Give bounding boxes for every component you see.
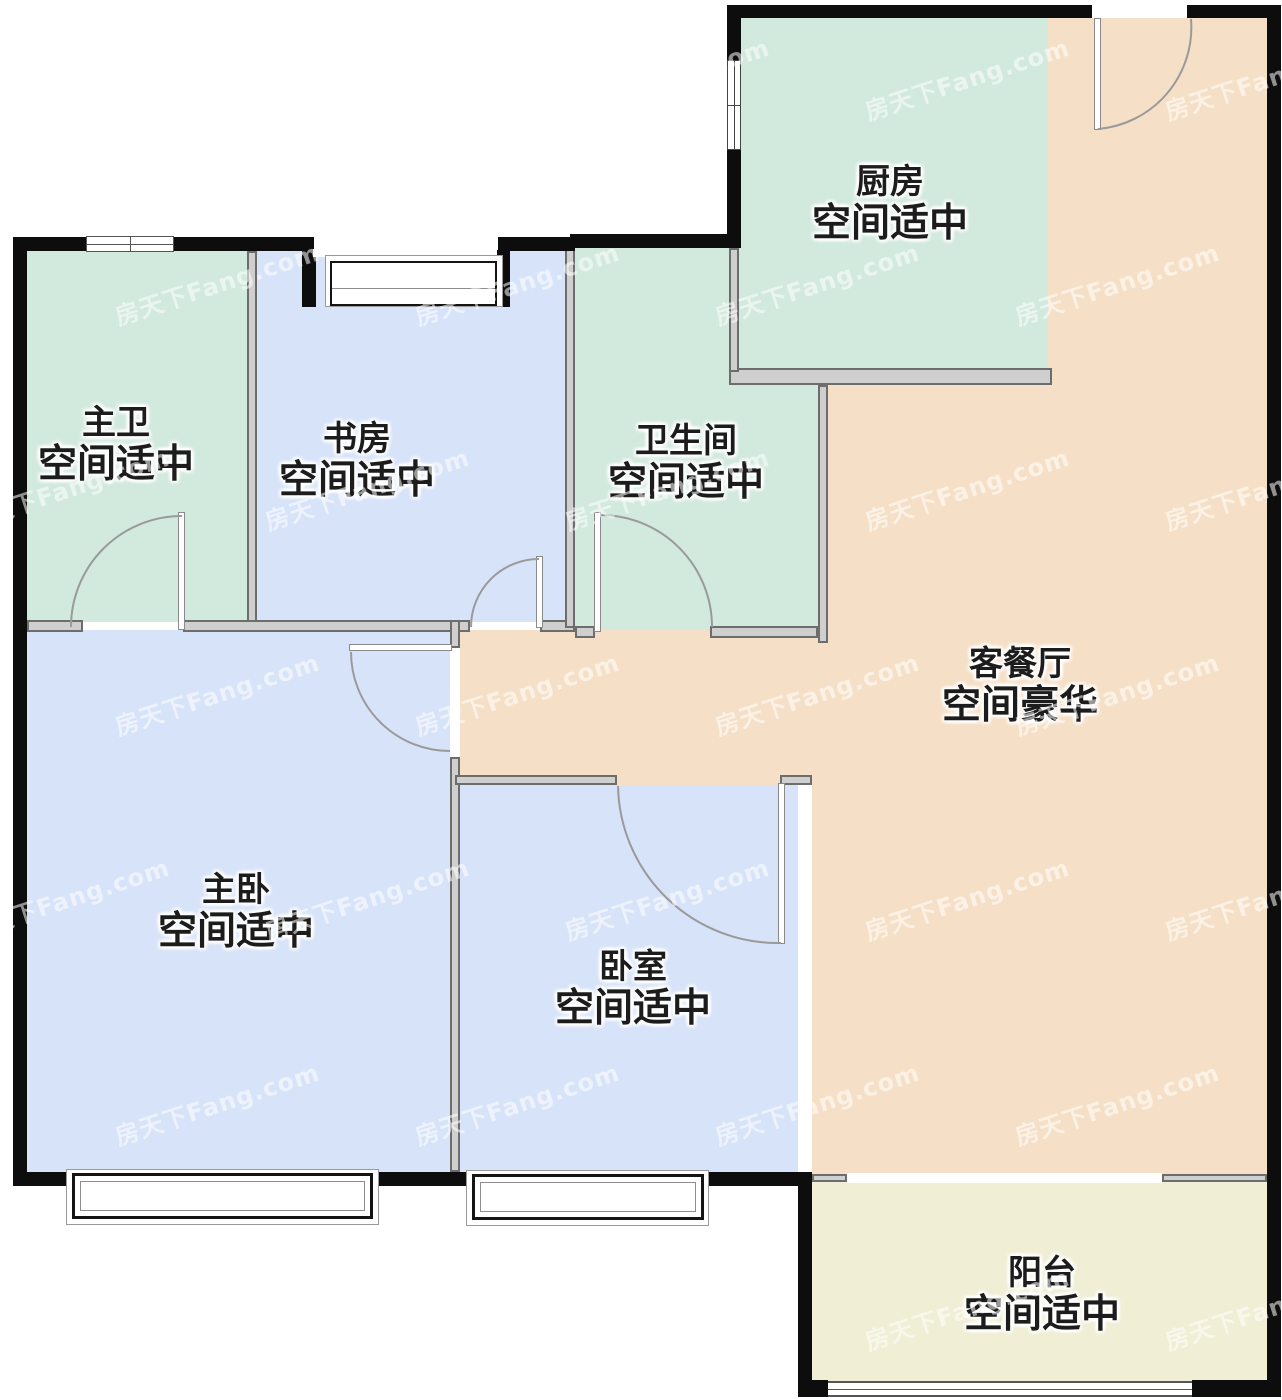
room-label-bedroom: 卧室 空间适中 bbox=[555, 948, 711, 1032]
room-name: 卧室 bbox=[599, 948, 667, 987]
room-label-kitchen: 厨房 空间适中 bbox=[812, 163, 968, 247]
wall-balcony-top-b bbox=[1162, 1174, 1267, 1182]
wall-bottom-c bbox=[707, 1172, 812, 1186]
room-name: 书房 bbox=[323, 420, 391, 459]
watermark-text: 房天下Fang.com bbox=[0, 28, 173, 127]
wall-masterbath-study bbox=[247, 251, 257, 622]
wall-balcony-bottom-left bbox=[798, 1380, 828, 1397]
room-size-rating: 空间适中 bbox=[608, 461, 764, 506]
wall-bathroom-top bbox=[570, 234, 741, 248]
wall-hall-top-a bbox=[27, 620, 83, 632]
wall-bottom-b bbox=[377, 1172, 468, 1186]
room-label-study: 书房 空间适中 bbox=[279, 420, 435, 504]
room-name: 卫生间 bbox=[635, 422, 737, 461]
wall-kitchen-left-lower bbox=[729, 248, 739, 372]
room-label-master-bath: 主卫 空间适中 bbox=[38, 404, 194, 488]
wall-top-c bbox=[498, 237, 575, 251]
wall-left bbox=[13, 237, 27, 1186]
room-size-rating: 空间适中 bbox=[555, 987, 711, 1032]
window-study-bay bbox=[330, 261, 497, 306]
room-living-fill bbox=[1048, 18, 1267, 1174]
wall-right bbox=[1267, 5, 1281, 1397]
balcony-opening bbox=[847, 1173, 1162, 1183]
door-leaf-bedroom bbox=[778, 783, 785, 944]
wall-bottom-a bbox=[13, 1172, 68, 1186]
room-label-balcony: 阳台 空间适中 bbox=[964, 1254, 1120, 1338]
window-kitchen-left bbox=[727, 60, 741, 150]
watermark-text: 房天下Fang.com bbox=[260, 28, 474, 127]
door-leaf-master-bedroom bbox=[349, 644, 452, 651]
window-masterbath-top bbox=[86, 236, 174, 252]
room-label-bathroom: 卫生间 空间适中 bbox=[608, 422, 764, 506]
room-size-rating: 空间适中 bbox=[279, 459, 435, 504]
wall-top-a bbox=[13, 237, 86, 251]
room-name: 阳台 bbox=[1008, 1254, 1076, 1293]
watermark-text: 房天下Fang.com bbox=[560, 1258, 774, 1357]
room-size-rating: 空间适中 bbox=[964, 1293, 1120, 1338]
wall-bathroom-bottom-b bbox=[710, 626, 818, 638]
wall-kitchen-bottom bbox=[729, 368, 1052, 385]
room-name: 厨房 bbox=[856, 163, 924, 202]
window-balcony-bottom bbox=[828, 1381, 1192, 1397]
wall-top-kitchen bbox=[727, 5, 1092, 18]
wall-study-bathroom bbox=[565, 248, 575, 628]
watermark-text: 房天下Fang.com bbox=[0, 1258, 173, 1357]
room-name: 主卫 bbox=[82, 404, 150, 443]
room-size-rating: 空间豪华 bbox=[942, 684, 1098, 729]
door-leaf-bathroom bbox=[594, 512, 601, 632]
wall-bathroom-bottom-a bbox=[575, 626, 595, 638]
door-leaf-entry bbox=[1094, 18, 1101, 130]
room-label-living-dining: 客餐厅 空间豪华 bbox=[942, 645, 1098, 729]
wall-top-b bbox=[174, 237, 314, 251]
room-size-rating: 空间适中 bbox=[38, 443, 194, 488]
room-label-master-bedroom: 主卧 空间适中 bbox=[158, 871, 314, 955]
wall-bedroom-top-a bbox=[455, 775, 617, 785]
room-living-fill bbox=[828, 383, 1048, 1174]
hallway-fill bbox=[460, 630, 818, 785]
room-size-rating: 空间适中 bbox=[158, 910, 314, 955]
wall-kitchen-left-mid bbox=[727, 148, 741, 248]
room-size-rating: 空间适中 bbox=[812, 202, 968, 247]
door-leaf-master-bath bbox=[178, 512, 185, 630]
window-bedroom-bay bbox=[472, 1174, 704, 1220]
room-name: 主卧 bbox=[202, 871, 270, 910]
wall-balcony-top-a bbox=[812, 1174, 847, 1182]
watermark-text: 房天下Fang.com bbox=[260, 1258, 474, 1357]
wall-baywin-post-left bbox=[302, 250, 316, 307]
wall-hall-top-b bbox=[183, 620, 470, 632]
floorplan: 主卫 空间适中 书房 空间适中 卫生间 空间适中 厨房 空间适中 客餐厅 空间豪… bbox=[0, 0, 1282, 1400]
wall-bottom-right-corner bbox=[1192, 1380, 1281, 1397]
room-name: 客餐厅 bbox=[969, 645, 1071, 684]
wall-bathroom-right bbox=[818, 385, 828, 643]
door-leaf-study bbox=[536, 556, 543, 628]
window-masterbed-bay bbox=[72, 1173, 373, 1219]
wall-balcony-left bbox=[798, 1172, 812, 1397]
wall-masterbed-right bbox=[450, 757, 460, 1172]
